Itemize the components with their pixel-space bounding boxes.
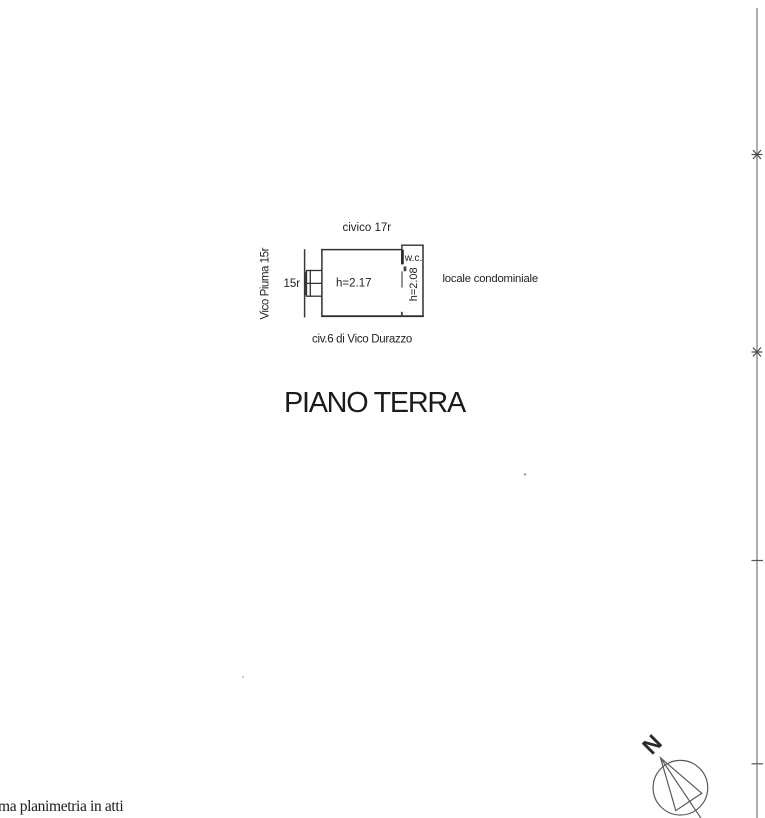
svg-text:PIANO TERRA: PIANO TERRA	[284, 387, 467, 419]
svg-text:w.c.: w.c.	[404, 253, 423, 264]
svg-text:civico 17r: civico 17r	[343, 222, 392, 234]
svg-text:h=2.17: h=2.17	[336, 278, 372, 290]
svg-text:locale condominiale: locale condominiale	[443, 273, 538, 285]
svg-text:civ.6 di Vico Durazzo: civ.6 di Vico Durazzo	[312, 334, 412, 346]
svg-text:ma planimetria in atti: ma planimetria in atti	[0, 798, 124, 815]
svg-text:Vico Piuma 15r: Vico Piuma 15r	[260, 247, 272, 319]
svg-text:15r: 15r	[284, 278, 301, 290]
svg-text:h=2.08: h=2.08	[408, 267, 420, 301]
svg-text:N: N	[637, 729, 667, 759]
